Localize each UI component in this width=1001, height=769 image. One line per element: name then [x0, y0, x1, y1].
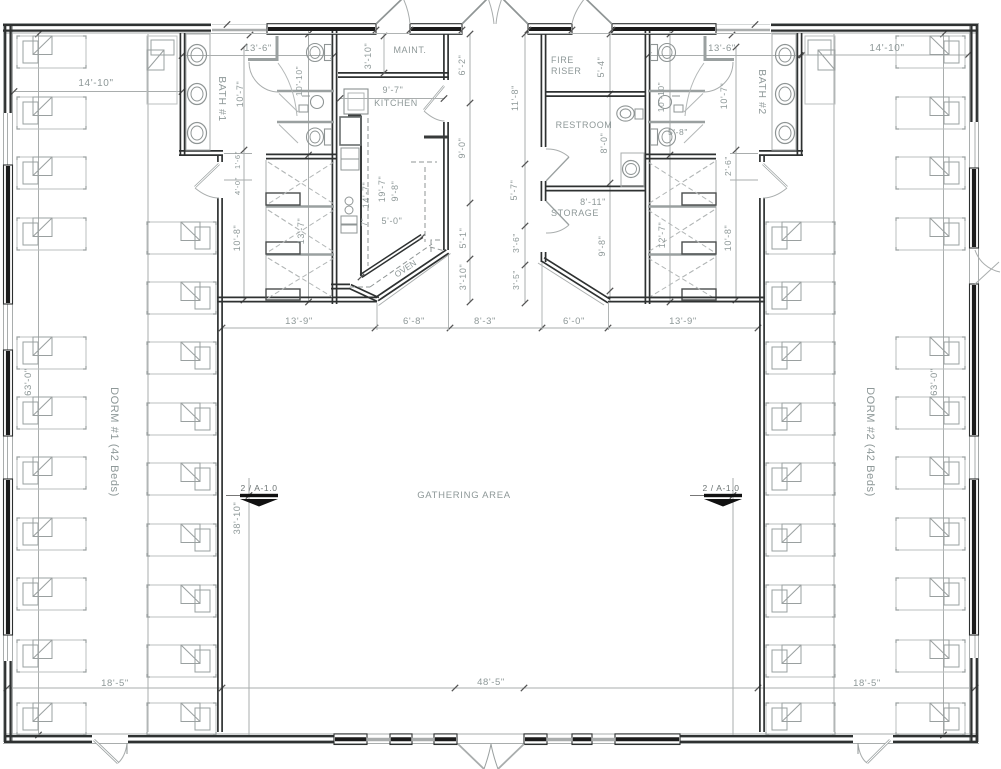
svg-text:13'-6": 13'-6" [708, 43, 736, 54]
svg-text:10'-10": 10'-10" [294, 66, 304, 97]
svg-text:38'-10": 38'-10" [232, 502, 242, 535]
svg-text:63'-0": 63'-0" [929, 368, 940, 396]
svg-text:11'-8": 11'-8" [510, 85, 520, 111]
svg-text:19'-7": 19'-7" [377, 176, 387, 203]
svg-text:13'-9": 13'-9" [669, 316, 697, 327]
svg-text:5'-1": 5'-1" [458, 228, 468, 249]
svg-text:2'-6": 2'-6" [723, 156, 733, 176]
svg-text:7": 7" [360, 218, 369, 227]
svg-text:MAINT.: MAINT. [393, 45, 426, 55]
svg-text:13'-9": 13'-9" [285, 316, 313, 327]
svg-text:10'-7": 10'-7" [235, 81, 245, 108]
svg-text:8'-3": 8'-3" [474, 316, 496, 327]
svg-text:DORM #2 (42 Beds): DORM #2 (42 Beds) [864, 387, 876, 497]
svg-text:10'-10": 10'-10" [656, 82, 666, 113]
svg-text:14'-7": 14'-7" [361, 182, 371, 209]
svg-text:5'-0": 5'-0" [382, 216, 403, 226]
svg-text:18'-5": 18'-5" [101, 678, 129, 689]
svg-text:2 / A-1.0: 2 / A-1.0 [702, 483, 739, 493]
svg-text:8'-0": 8'-0" [599, 133, 609, 154]
svg-text:2 / A-1.0: 2 / A-1.0 [240, 483, 277, 493]
svg-text:RISER: RISER [551, 66, 582, 76]
svg-text:4'-0": 4'-0" [233, 177, 242, 195]
svg-text:9'-8": 9'-8" [390, 181, 400, 202]
svg-text:KITCHEN: KITCHEN [374, 98, 418, 108]
svg-text:13'-6": 13'-6" [244, 43, 272, 54]
svg-text:9'-7": 9'-7" [383, 85, 404, 95]
svg-text:BATH #2: BATH #2 [756, 69, 767, 115]
svg-text:48'-5": 48'-5" [477, 677, 505, 688]
svg-text:10'-8": 10'-8" [232, 225, 242, 252]
svg-text:8'-11": 8'-11" [580, 197, 606, 207]
svg-text:3'-5": 3'-5" [511, 270, 521, 290]
svg-text:14'-10": 14'-10" [78, 78, 113, 89]
svg-text:5'-8": 5'-8" [668, 127, 688, 137]
svg-text:63'-0": 63'-0" [23, 368, 34, 396]
svg-text:3'-10": 3'-10" [458, 264, 468, 291]
svg-text:10'-8": 10'-8" [723, 225, 733, 252]
svg-text:13'-7": 13'-7" [296, 218, 306, 245]
svg-text:12'-7": 12'-7" [657, 222, 667, 249]
svg-text:5'-7": 5'-7" [509, 180, 519, 201]
svg-text:10'-7": 10'-7" [719, 83, 729, 110]
svg-text:1'-6": 1'-6" [233, 151, 242, 169]
svg-text:3'-10": 3'-10" [363, 43, 373, 70]
svg-text:9'-8": 9'-8" [597, 236, 607, 257]
svg-text:FIRE: FIRE [551, 55, 574, 65]
svg-text:5'-4": 5'-4" [596, 57, 606, 78]
svg-text:6'-8": 6'-8" [403, 316, 425, 327]
svg-text:14'-10": 14'-10" [869, 43, 904, 54]
svg-text:3'-6": 3'-6" [511, 233, 521, 253]
svg-text:DORM #1 (42 Beds): DORM #1 (42 Beds) [108, 387, 120, 497]
svg-text:6'-2": 6'-2" [457, 55, 467, 76]
svg-text:18'-5": 18'-5" [853, 678, 881, 689]
svg-text:RESTROOM: RESTROOM [556, 120, 613, 130]
svg-text:9'-0": 9'-0" [457, 138, 467, 159]
svg-text:GATHERING AREA: GATHERING AREA [417, 490, 511, 501]
svg-text:BATH #1: BATH #1 [216, 76, 227, 122]
svg-text:STORAGE: STORAGE [551, 208, 599, 218]
svg-text:6'-0": 6'-0" [563, 316, 585, 327]
